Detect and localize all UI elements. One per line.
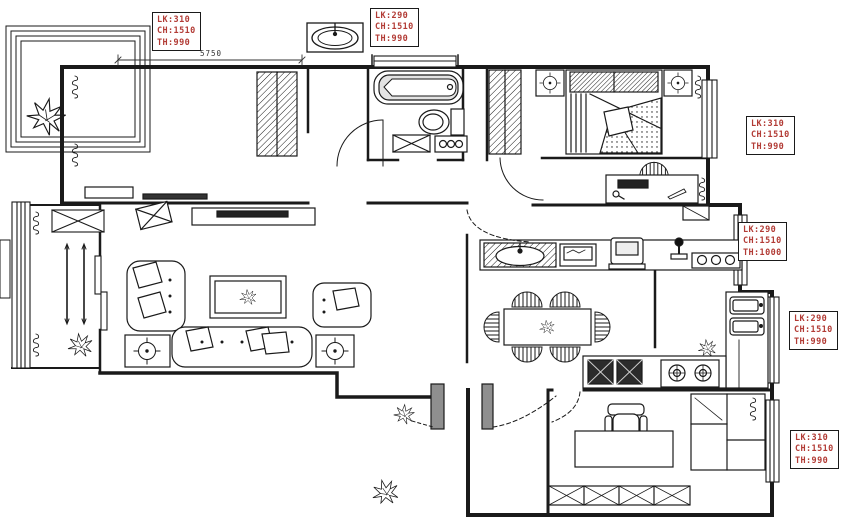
closet (691, 394, 765, 470)
curtain-spring-icon (33, 212, 38, 234)
study (549, 394, 765, 505)
chair-icon (550, 347, 580, 362)
spec-line: LK:310 (157, 15, 196, 26)
spec-line: TH:990 (795, 456, 834, 467)
spec-line: CH:1510 (795, 444, 834, 455)
bedroom2 (489, 70, 701, 154)
sliding-door-panel (95, 256, 101, 294)
vanity-burners (435, 136, 467, 152)
spec-line: TH:990 (157, 38, 196, 49)
drying-rods (65, 244, 86, 324)
spec-line: LK:290 (743, 225, 782, 236)
storage-row (549, 486, 690, 505)
floor-plan-page: LK:310 CH:1510 TH:990 LK:290 CH:1510 TH:… (0, 0, 860, 525)
water-dispenser (609, 238, 645, 269)
living-room (125, 201, 371, 367)
bed (566, 70, 662, 154)
bathroom (374, 71, 467, 152)
kitchen-counter (480, 238, 742, 270)
window-bathroom-top (374, 56, 456, 67)
dining-table (504, 309, 591, 345)
kitchen-right (583, 292, 768, 388)
chair-icon (550, 292, 580, 307)
spec-line: LK:290 (794, 314, 833, 325)
toilet (419, 109, 464, 135)
sofa (172, 327, 312, 367)
desk-nook (606, 162, 709, 220)
bathtub (374, 71, 463, 104)
window-spec-label: LK:290 CH:1510 TH:1000 (738, 222, 787, 261)
plant-icon (392, 403, 415, 425)
door-arcs (337, 120, 580, 427)
spec-line: TH:990 (751, 142, 790, 153)
curtain-spring-icon (695, 76, 700, 98)
entry-door-pillars (431, 384, 493, 429)
spec-line: LK:290 (375, 11, 414, 22)
desk (575, 431, 673, 467)
window-spec-label: LK:290 CH:1510 TH:990 (370, 8, 419, 47)
basin-symbol (307, 23, 363, 52)
balcony-top-left (6, 26, 150, 152)
plant-icon (371, 478, 400, 505)
spec-line: TH:990 (794, 337, 833, 348)
microwave (560, 244, 596, 266)
entry (371, 403, 433, 506)
balcony-left (33, 210, 107, 356)
dining-area (484, 292, 610, 362)
plant-icon (68, 334, 92, 357)
speaker (136, 201, 172, 229)
chair-icon (595, 312, 610, 342)
window-study-right (766, 400, 779, 482)
chair-icon (484, 312, 499, 342)
left-edge-ledge (0, 240, 10, 298)
bedroom2-door-arc (500, 158, 543, 200)
plant-icon (698, 340, 716, 357)
spec-line: CH:1510 (743, 236, 782, 247)
spec-line: CH:1510 (157, 26, 196, 37)
bench (85, 187, 133, 198)
coffee-table (210, 276, 286, 318)
tv (217, 211, 288, 217)
gas-stove (661, 360, 719, 387)
curtain-spring-icon (699, 178, 704, 200)
window-spec-label: LK:310 CH:1510 TH:990 (152, 12, 201, 51)
spec-line: CH:1510 (375, 22, 414, 33)
window-spec-label: LK:310 CH:1510 TH:990 (746, 116, 795, 155)
washing-machine (393, 135, 430, 152)
loveseat (127, 261, 185, 331)
window-spec-label: LK:290 CH:1510 TH:990 (789, 311, 838, 350)
spec-line: CH:1510 (794, 325, 833, 336)
window-spec-label: LK:310 CH:1510 TH:990 (790, 430, 839, 469)
spec-line: TH:990 (375, 34, 414, 45)
spec-line: CH:1510 (751, 130, 790, 141)
dimension-text: 5750 (176, 49, 246, 58)
curtain-spring-icon (33, 334, 38, 356)
study-door-arc (552, 392, 580, 422)
chair-icon (512, 292, 542, 307)
tv-unit (143, 194, 207, 199)
curtain-spring-icon (72, 76, 77, 98)
sliding-door-panel (101, 292, 107, 330)
kitchen-sink (484, 243, 556, 267)
spec-line: LK:310 (751, 119, 790, 130)
window-balcony-left (12, 202, 30, 368)
hall-door-arc (467, 210, 530, 242)
floor-plan-canvas (0, 0, 860, 525)
bedroom1 (72, 72, 297, 199)
burner-panel (692, 253, 740, 268)
spec-line: TH:1000 (743, 248, 782, 259)
armchair (313, 283, 371, 327)
window-bedroom2-right (702, 80, 717, 158)
chair-icon (512, 347, 542, 362)
spec-line: LK:310 (795, 433, 834, 444)
